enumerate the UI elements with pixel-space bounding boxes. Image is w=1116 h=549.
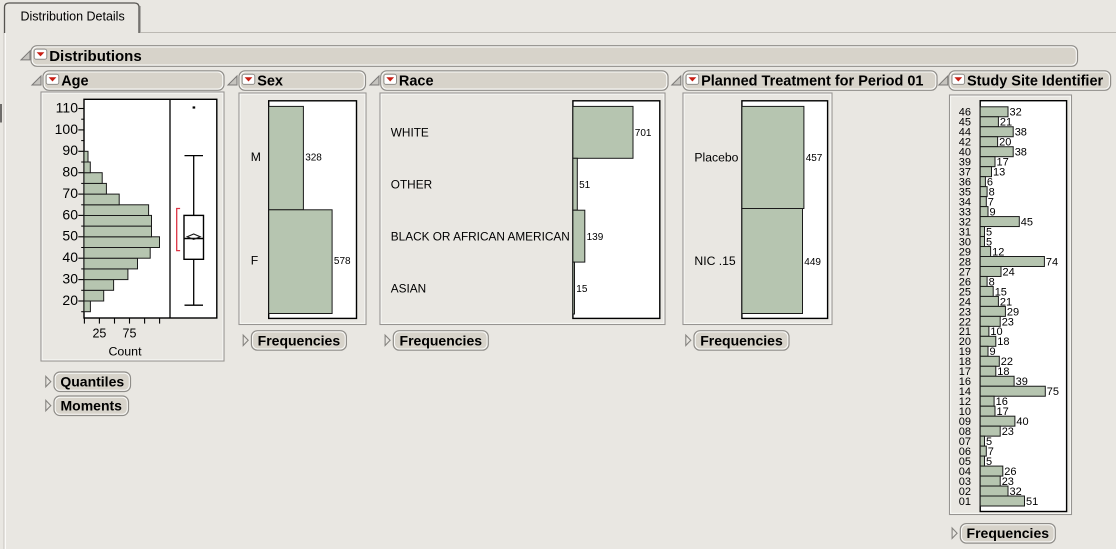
- svg-text:Study Site Identifier: Study Site Identifier: [967, 74, 1104, 90]
- svg-text:01: 01: [959, 496, 971, 508]
- svg-text:578: 578: [334, 256, 351, 267]
- svg-text:9: 9: [990, 207, 996, 219]
- svg-text:25: 25: [92, 326, 106, 340]
- svg-text:40: 40: [62, 249, 78, 265]
- svg-text:15: 15: [576, 284, 588, 295]
- svg-text:70: 70: [62, 185, 78, 201]
- svg-text:51: 51: [1026, 496, 1038, 508]
- svg-text:Race: Race: [399, 74, 434, 90]
- svg-text:75: 75: [1047, 386, 1059, 398]
- svg-text:9: 9: [990, 346, 996, 358]
- svg-text:Quantiles: Quantiles: [60, 374, 124, 390]
- svg-text:F: F: [251, 254, 258, 268]
- svg-text:60: 60: [62, 206, 78, 222]
- svg-text:30: 30: [62, 271, 78, 287]
- svg-text:Frequencies: Frequencies: [700, 332, 783, 348]
- svg-text:75: 75: [123, 326, 137, 340]
- svg-text:23: 23: [1002, 426, 1014, 438]
- svg-text:18: 18: [997, 366, 1009, 378]
- svg-text:32: 32: [1010, 486, 1022, 498]
- svg-text:80: 80: [62, 164, 78, 180]
- svg-text:457: 457: [806, 153, 823, 164]
- svg-text:M: M: [251, 150, 261, 164]
- svg-text:OTHER: OTHER: [391, 178, 432, 192]
- svg-text:13: 13: [993, 167, 1005, 179]
- svg-text:39: 39: [1016, 376, 1028, 388]
- svg-text:Frequencies: Frequencies: [400, 332, 483, 348]
- svg-text:Sex: Sex: [257, 74, 283, 90]
- svg-text:701: 701: [635, 128, 652, 139]
- svg-text:WHITE: WHITE: [391, 126, 429, 140]
- svg-text:Distribution Details: Distribution Details: [21, 10, 125, 24]
- svg-text:5: 5: [986, 456, 992, 468]
- svg-text:110: 110: [56, 99, 79, 115]
- svg-text:17: 17: [997, 406, 1009, 418]
- svg-text:139: 139: [587, 232, 604, 243]
- svg-text:12: 12: [992, 246, 1004, 258]
- svg-text:Age: Age: [61, 74, 88, 90]
- svg-text:Distributions: Distributions: [49, 48, 142, 65]
- svg-text:45: 45: [1021, 217, 1033, 229]
- svg-text:Frequencies: Frequencies: [258, 332, 341, 348]
- svg-text:100: 100: [55, 121, 79, 137]
- svg-text:20: 20: [999, 137, 1011, 149]
- svg-text:Count: Count: [108, 345, 142, 359]
- svg-text:38: 38: [1015, 147, 1027, 159]
- svg-text:BLACK OR AFRICAN AMERICAN: BLACK OR AFRICAN AMERICAN: [391, 229, 570, 243]
- svg-text:38: 38: [1015, 127, 1027, 139]
- svg-text:Placebo: Placebo: [694, 151, 738, 165]
- svg-text:74: 74: [1046, 256, 1058, 268]
- svg-text:23: 23: [1002, 316, 1014, 328]
- svg-text:21: 21: [1000, 117, 1012, 129]
- svg-text:20: 20: [62, 292, 78, 308]
- svg-text:Moments: Moments: [61, 398, 123, 414]
- svg-text:18: 18: [997, 336, 1009, 348]
- svg-text:40: 40: [1016, 416, 1028, 428]
- svg-text:Planned Treatment for Period 0: Planned Treatment for Period 01: [701, 74, 923, 90]
- svg-text:328: 328: [305, 152, 322, 163]
- svg-text:NIC .15: NIC .15: [694, 254, 736, 268]
- svg-text:Frequencies: Frequencies: [967, 525, 1050, 541]
- svg-text:ASIAN: ASIAN: [391, 281, 426, 295]
- svg-text:90: 90: [62, 142, 78, 158]
- svg-text:50: 50: [62, 228, 78, 244]
- svg-text:24: 24: [1003, 266, 1015, 278]
- svg-text:449: 449: [804, 257, 821, 268]
- svg-text:51: 51: [579, 180, 591, 191]
